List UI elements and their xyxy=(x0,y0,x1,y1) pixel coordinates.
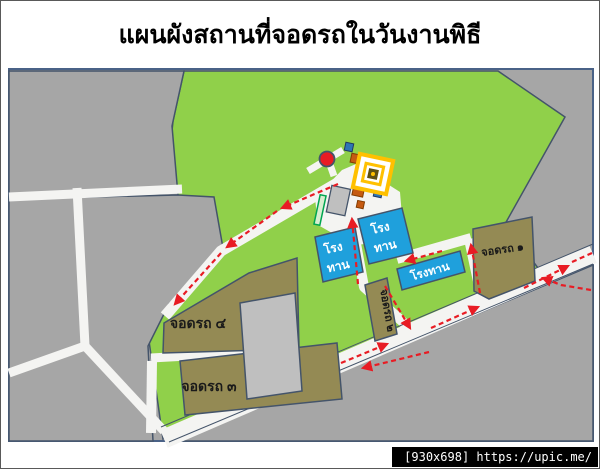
red-circle-marker xyxy=(320,152,335,167)
watermark-badge: [930x698] https://upic.me/ xyxy=(392,447,598,467)
parking-4-label: จอดรถ ๔ xyxy=(170,315,227,331)
building-gray-large xyxy=(240,293,302,399)
orange-building-icon xyxy=(356,200,364,208)
parking-map: จอดรถ ๔ จอดรถ ๓ จอดรถ ๒ จอดรถ ๑ โรง ทาน … xyxy=(1,1,600,469)
blue-building-icon xyxy=(344,142,353,151)
parking-3-label: จอดรถ ๓ xyxy=(181,378,237,394)
pavilion-right xyxy=(358,208,413,264)
road-parking4-west xyxy=(151,361,152,433)
screenshot-frame: แผนผังสถานที่จอดรถในวันงานพิธี xyxy=(0,0,600,469)
temple-icon xyxy=(353,154,393,194)
gray-area-top-left xyxy=(9,71,184,199)
